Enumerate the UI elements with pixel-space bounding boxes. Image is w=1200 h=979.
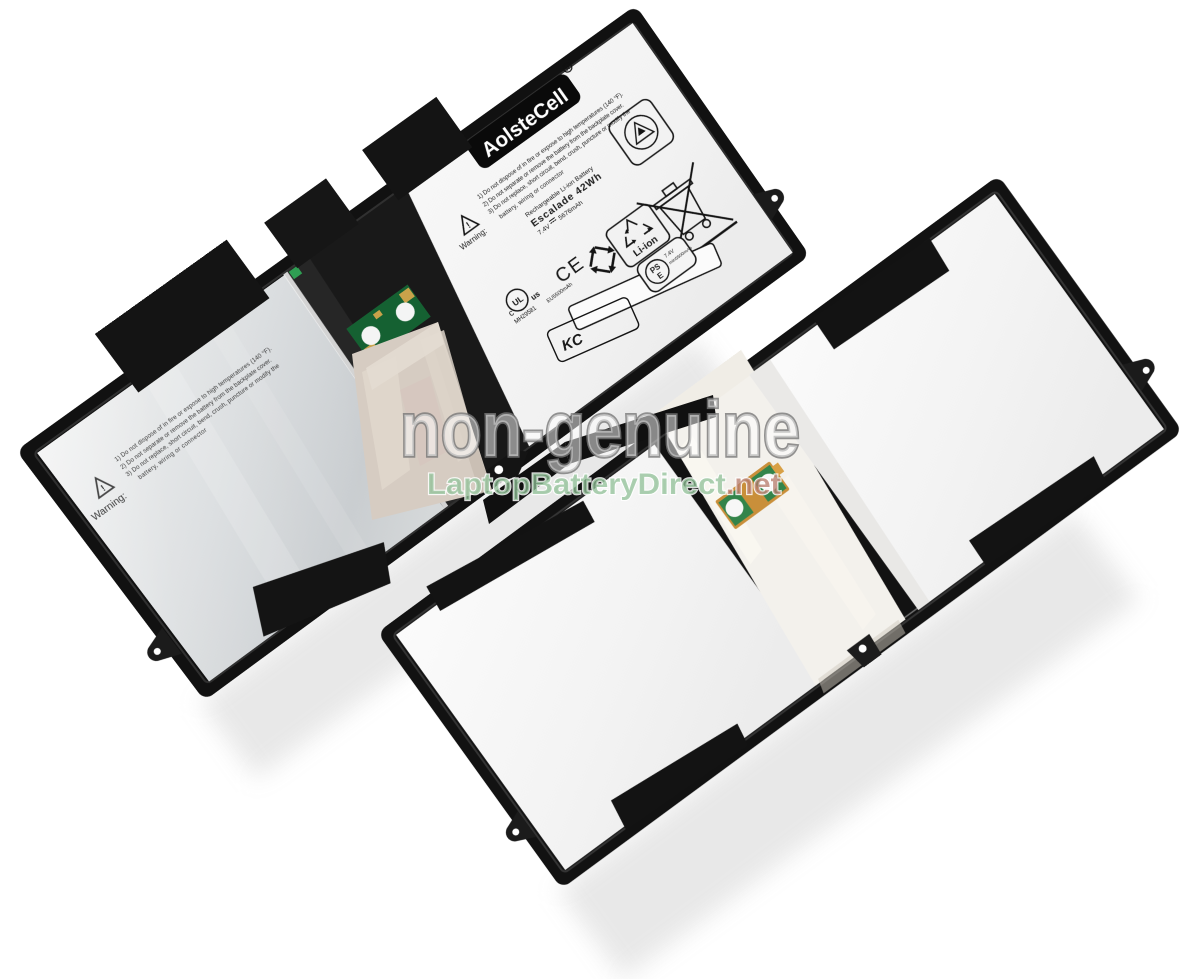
svg-text:non-genuine: non-genuine (400, 385, 800, 473)
svg-text:LaptopBatteryDirect.net: LaptopBatteryDirect.net (427, 468, 781, 501)
